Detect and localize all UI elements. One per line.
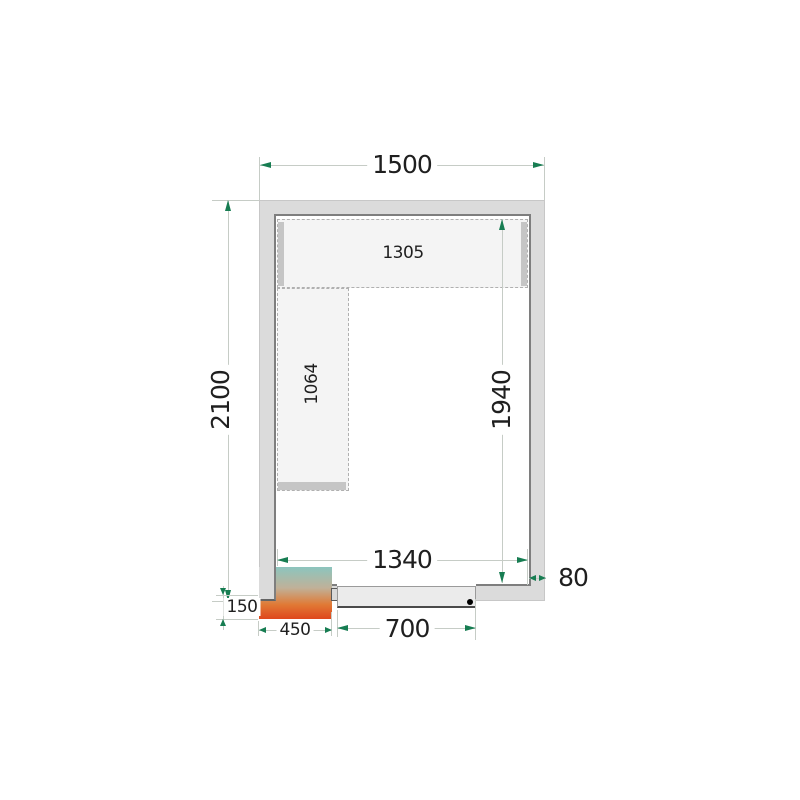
arrow-left-icon (260, 162, 271, 168)
arrow-up-icon (499, 219, 505, 230)
arrow-right-icon (517, 557, 528, 563)
wall-left-segment (259, 567, 276, 601)
arrow-right-icon (325, 627, 332, 633)
door-leaf (337, 586, 476, 608)
arrow-left-icon (529, 575, 536, 581)
shelf-top-length-label: 1305 (379, 244, 426, 262)
arrow-right-icon (533, 162, 544, 168)
arrow-left-icon (259, 627, 266, 633)
shelf-top-left-support (278, 222, 284, 286)
dim-outer-width-label: 1500 (367, 152, 437, 178)
arrow-down-icon (220, 588, 226, 595)
arrow-right-icon (539, 575, 546, 581)
arrow-left-icon (277, 557, 288, 563)
extension-line (337, 610, 338, 637)
dim-inner-height-label: 1940 (489, 365, 515, 435)
shelf-top-right-support (521, 222, 527, 286)
extension-line (475, 599, 476, 640)
dim-unit-width-label: 450 (277, 621, 314, 639)
arrow-up-icon (220, 619, 226, 626)
arrow-down-icon (499, 572, 505, 583)
dim-outer-height-label: 2100 (208, 365, 234, 435)
extension-line (527, 549, 528, 585)
floor-plan-canvas: 1305 1064 1500 2100 1940 1340 700 450 (0, 0, 800, 800)
shelf-side-length-label: 1064 (303, 360, 321, 407)
door-handle-dot (467, 599, 473, 605)
extension-line (212, 200, 259, 201)
dim-door-width-label: 700 (380, 616, 435, 642)
shelf-left-end-support (278, 482, 346, 490)
arrow-left-icon (337, 625, 348, 631)
extension-line (544, 157, 545, 200)
dim-inner-width-label: 1340 (367, 547, 437, 573)
arrow-up-icon (225, 200, 231, 211)
arrow-right-icon (465, 625, 476, 631)
dim-unit-depth-label: 150 (224, 598, 261, 616)
dim-wall-thickness-label: 80 (553, 565, 593, 591)
